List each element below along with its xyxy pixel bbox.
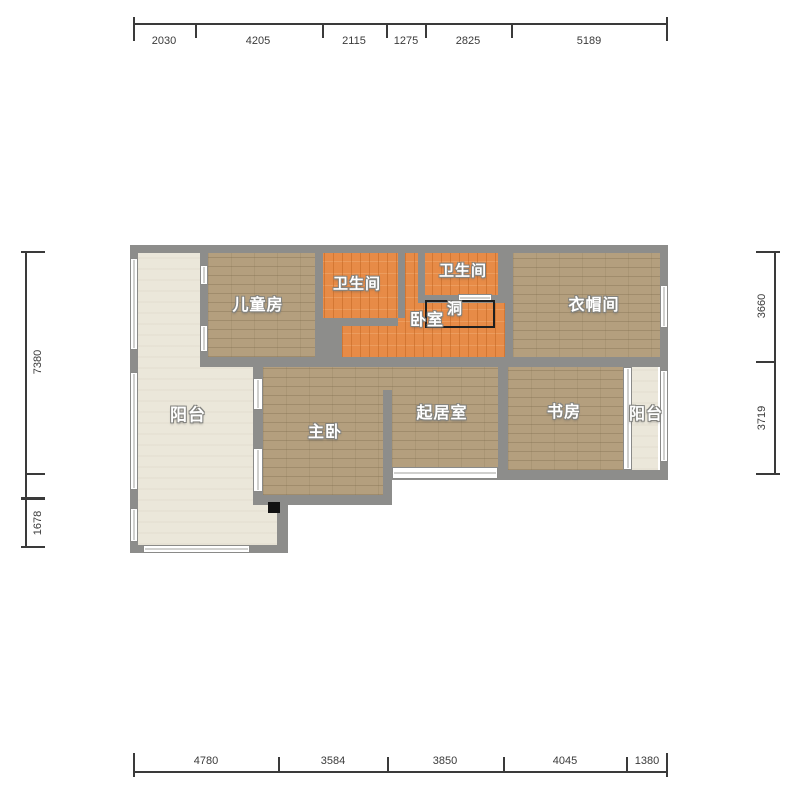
- window-living-bottom: [392, 467, 498, 479]
- dim-bottom-tick: [387, 757, 389, 772]
- cloakroom-label: 衣帽间: [568, 291, 619, 315]
- wall-corner-block: [315, 318, 342, 358]
- window-balcony-bottom: [143, 545, 250, 553]
- bathroom-right-label: 卫生间: [439, 260, 487, 281]
- balcony-left-label: 阳台: [170, 401, 206, 426]
- dim-right-tick: [756, 473, 780, 475]
- dim-bottom-tick: [133, 753, 135, 777]
- wall-top-outer: [133, 245, 668, 253]
- dim-left-tick: [21, 546, 45, 548]
- dim-left-tick: [21, 251, 45, 253]
- dim-bottom-tick: [626, 757, 628, 772]
- dim-bottom-value: 4780: [194, 755, 218, 767]
- dim-top-value: 2825: [456, 35, 480, 47]
- dim-top-line: [133, 23, 668, 25]
- dim-left-line: [25, 251, 27, 548]
- dim-bottom-line: [133, 771, 668, 773]
- master-bedroom-label: 主卧: [308, 418, 342, 442]
- corner-marker: [268, 502, 280, 513]
- dim-top-tick: [666, 17, 668, 41]
- study-label: 书房: [547, 398, 581, 422]
- dim-top-value: 4205: [246, 35, 270, 47]
- wall-middle-band: [200, 357, 660, 367]
- dim-bottom-value: 4045: [553, 755, 577, 767]
- dim-left-tick: [21, 497, 45, 500]
- wall-living-study: [498, 363, 508, 480]
- window-balcony-children-b: [200, 325, 208, 352]
- dim-right-line: [774, 251, 776, 475]
- window-left-upper: [130, 258, 138, 350]
- dim-right-value: 3719: [756, 406, 768, 430]
- wall-bathroom1-right: [398, 253, 405, 318]
- dim-right-tick: [756, 251, 780, 253]
- dim-bottom-value: 3584: [321, 755, 345, 767]
- dim-top-value: 1275: [394, 35, 418, 47]
- dim-top-value: 5189: [577, 35, 601, 47]
- window-balcony-children-a: [200, 265, 208, 285]
- balcony-left-floor: [138, 253, 200, 545]
- dim-bottom-value: 1380: [635, 755, 659, 767]
- children-room-label: 儿童房: [232, 291, 283, 315]
- dim-top-value: 2115: [342, 35, 366, 47]
- dim-left-value: 1678: [32, 511, 44, 535]
- window-balcony-master-b: [253, 448, 263, 492]
- window-cloakroom-right: [660, 285, 668, 328]
- floor-plan: 阳台 儿童房 卫生间 卫生间 卧室 洞 衣帽间 主卧 起居室 书房 阳台 203…: [0, 0, 800, 800]
- dim-top-tick: [386, 23, 388, 38]
- hole-label: 洞: [447, 298, 463, 319]
- dim-top-tick: [322, 23, 324, 38]
- window-left-middle: [130, 372, 138, 490]
- wall-children-right: [315, 253, 323, 318]
- bathroom-left-label: 卫生间: [333, 273, 381, 294]
- wall-cloakroom-left: [505, 253, 513, 358]
- balcony-right-label: 阳台: [629, 400, 663, 424]
- living-room-label: 起居室: [416, 399, 467, 423]
- dim-right-value: 3660: [756, 294, 768, 318]
- dim-left-tick: [25, 473, 45, 475]
- dim-top-tick: [511, 23, 513, 38]
- window-left-lower: [130, 508, 138, 542]
- dim-top-value: 2030: [152, 35, 176, 47]
- dim-bottom-value: 3850: [433, 755, 457, 767]
- dim-top-tick: [425, 23, 427, 38]
- wall-bathroom2-right: [498, 253, 505, 303]
- window-balcony-master-a: [253, 378, 263, 410]
- dim-bottom-tick: [666, 753, 668, 777]
- balcony-left-floor-lower: [200, 367, 255, 545]
- dim-bottom-tick: [503, 757, 505, 772]
- dim-right-tick: [756, 361, 776, 363]
- dim-top-tick: [195, 23, 197, 38]
- dim-left-value: 7380: [32, 350, 44, 374]
- dim-top-tick: [133, 17, 135, 41]
- wall-bathroom1-bottom: [342, 318, 398, 326]
- dim-bottom-tick: [278, 757, 280, 772]
- bedroom-label: 卧室: [410, 306, 444, 330]
